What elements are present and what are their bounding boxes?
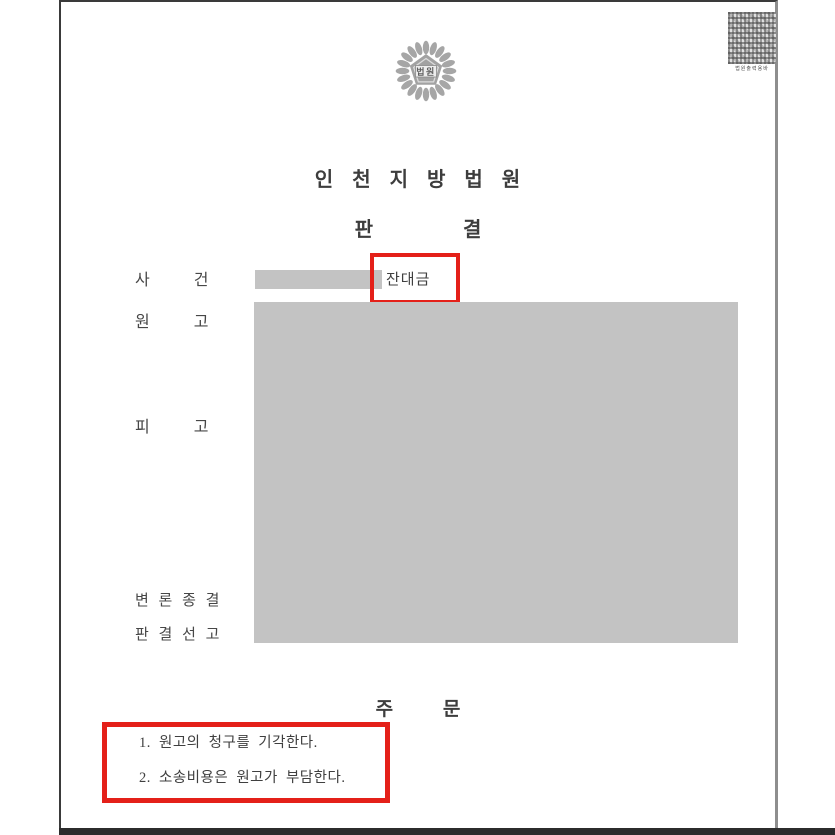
order-section-header: 주 문 <box>61 694 775 721</box>
barcode-caption: 법원출력용바 <box>722 66 782 73</box>
document-page: 법원 법원출력용바 인 천 지 방 법 원 판 결 사 건 잔대금 원 고 피 … <box>59 0 778 828</box>
order-highlight-box: 1. 원고의 청구를 기각한다. 2. 소송비용은 원고가 부담한다. <box>102 722 390 803</box>
scanned-judgment-document: { "page": { "emblem_label": "법원", "barco… <box>0 0 835 835</box>
case-type-highlight-box: 잔대금 <box>370 253 460 304</box>
case-label: 사 건 <box>135 266 208 290</box>
court-name-title: 인 천 지 방 법 원 <box>61 163 775 192</box>
order-item-2: 2. 소송비용은 원고가 부담한다. <box>139 769 385 787</box>
emblem-label: 법원 <box>416 66 436 77</box>
case-number-redaction <box>255 270 382 289</box>
parties-redaction-block <box>254 302 738 643</box>
closing-of-arguments-label: 변 론 종 결 <box>135 589 220 610</box>
defendant-label: 피 고 <box>135 413 208 437</box>
order-item-1: 1. 원고의 청구를 기각한다. <box>139 734 385 752</box>
plaintiff-label: 원 고 <box>135 308 208 332</box>
judgment-date-label: 판 결 선 고 <box>135 623 220 644</box>
court-emblem-icon: 법원 <box>389 38 463 104</box>
barcode-icon <box>728 12 776 64</box>
page-bottom-edge <box>59 828 835 835</box>
case-type-value: 잔대금 <box>374 268 430 289</box>
judgment-title: 판 결 <box>61 213 775 242</box>
